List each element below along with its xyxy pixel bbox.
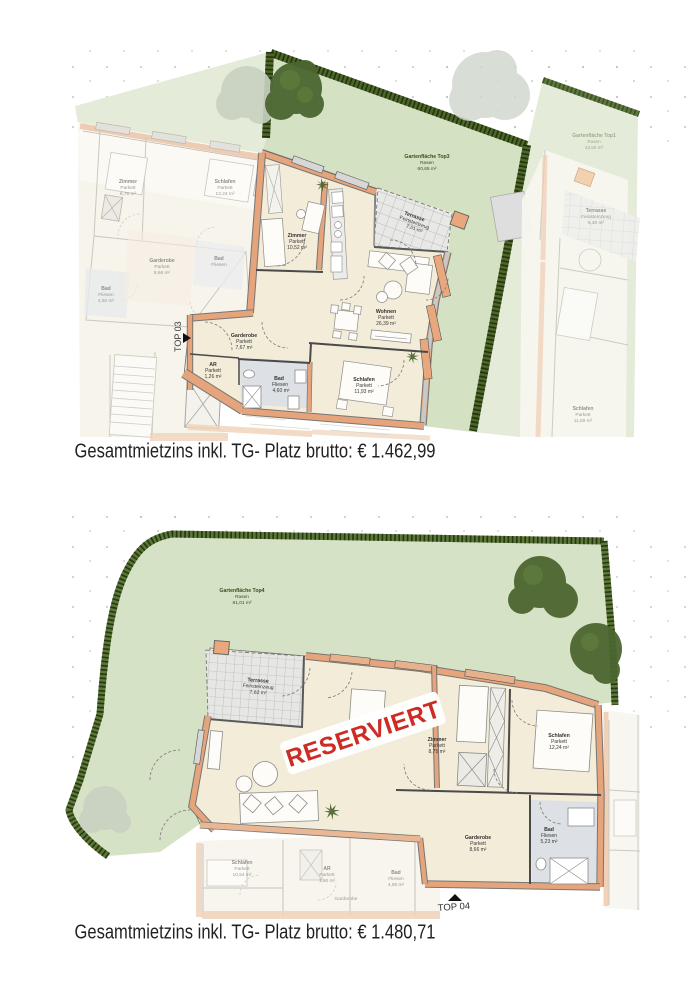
svg-text:60,65 m²: 60,65 m² — [418, 166, 437, 172]
svg-text:Gartenfläche Top3: Gartenfläche Top3 — [404, 154, 449, 160]
svg-text:Schlafen: Schlafen — [232, 860, 253, 866]
svg-text:Bad: Bad — [101, 286, 110, 292]
svg-text:26,39 m²: 26,39 m² — [376, 321, 396, 327]
svg-text:6,75 m²: 6,75 m² — [120, 191, 137, 197]
svg-text:Gesamtmietzins inkl. TG- Platz: Gesamtmietzins inkl. TG- Platz brutto: €… — [75, 441, 436, 463]
svg-text:Parkett: Parkett — [319, 872, 335, 878]
svg-text:Parkett: Parkett — [120, 185, 136, 191]
svg-text:Schlafen: Schlafen — [573, 406, 594, 412]
svg-text:Fliesen: Fliesen — [98, 292, 114, 298]
svg-text:Parkett: Parkett — [234, 866, 250, 872]
svg-text:7,62 m²: 7,62 m² — [249, 689, 267, 696]
svg-text:Rasen: Rasen — [420, 160, 434, 166]
svg-text:Terrasse: Terrasse — [586, 208, 607, 214]
svg-text:1,90 m²: 1,90 m² — [319, 878, 336, 884]
svg-text:Fliesen: Fliesen — [388, 876, 404, 882]
svg-text:Garderobe: Garderobe — [149, 258, 175, 264]
svg-text:8,75 m²: 8,75 m² — [429, 749, 446, 755]
svg-text:11,93 m²: 11,93 m² — [354, 389, 374, 395]
svg-text:81,01 m²: 81,01 m² — [233, 600, 252, 606]
svg-text:Gesamtmietzins inkl. TG- Platz: Gesamtmietzins inkl. TG- Platz brutto: €… — [75, 922, 436, 944]
svg-text:4,60 m²: 4,60 m² — [273, 388, 290, 394]
svg-text:Garderobe: Garderobe — [335, 896, 358, 902]
svg-text:Parkett: Parkett — [217, 185, 233, 191]
svg-text:10,52 m²: 10,52 m² — [287, 245, 307, 251]
svg-text:7,67 m²: 7,67 m² — [236, 345, 253, 351]
svg-text:1,26 m²: 1,26 m² — [205, 374, 222, 380]
svg-text:8,66 m²: 8,66 m² — [154, 270, 171, 276]
svg-text:Rasen: Rasen — [587, 139, 601, 144]
svg-text:AR: AR — [323, 866, 331, 872]
svg-text:8,66 m²: 8,66 m² — [470, 847, 487, 853]
svg-text:Parkett: Parkett — [154, 264, 170, 270]
svg-text:12,24 m²: 12,24 m² — [549, 745, 569, 751]
svg-text:Feinsteinzeug: Feinsteinzeug — [581, 214, 611, 220]
svg-text:Zimmer: Zimmer — [119, 179, 137, 185]
svg-text:TOP 04: TOP 04 — [437, 901, 470, 914]
svg-text:12,24 m²: 12,24 m² — [216, 191, 235, 197]
svg-text:TOP 03: TOP 03 — [173, 321, 183, 352]
svg-text:42,50 m²: 42,50 m² — [585, 145, 604, 150]
svg-text:10,54 m²: 10,54 m² — [233, 872, 252, 878]
svg-text:Gartenfläche Top4: Gartenfläche Top4 — [219, 588, 264, 594]
svg-text:Rasen: Rasen — [235, 594, 249, 600]
svg-text:Fliesen: Fliesen — [211, 262, 227, 268]
svg-text:11,59 m²: 11,59 m² — [574, 418, 593, 424]
svg-text:Bad: Bad — [391, 870, 400, 876]
svg-text:4,50 m²: 4,50 m² — [388, 882, 405, 888]
svg-text:4,50 m²: 4,50 m² — [98, 298, 115, 304]
svg-text:Parkett: Parkett — [575, 412, 591, 418]
svg-text:Bad: Bad — [214, 256, 223, 262]
svg-text:Schlafen: Schlafen — [215, 179, 236, 185]
svg-text:5,23 m²: 5,23 m² — [541, 839, 558, 845]
svg-text:5,30 m²: 5,30 m² — [588, 220, 605, 226]
